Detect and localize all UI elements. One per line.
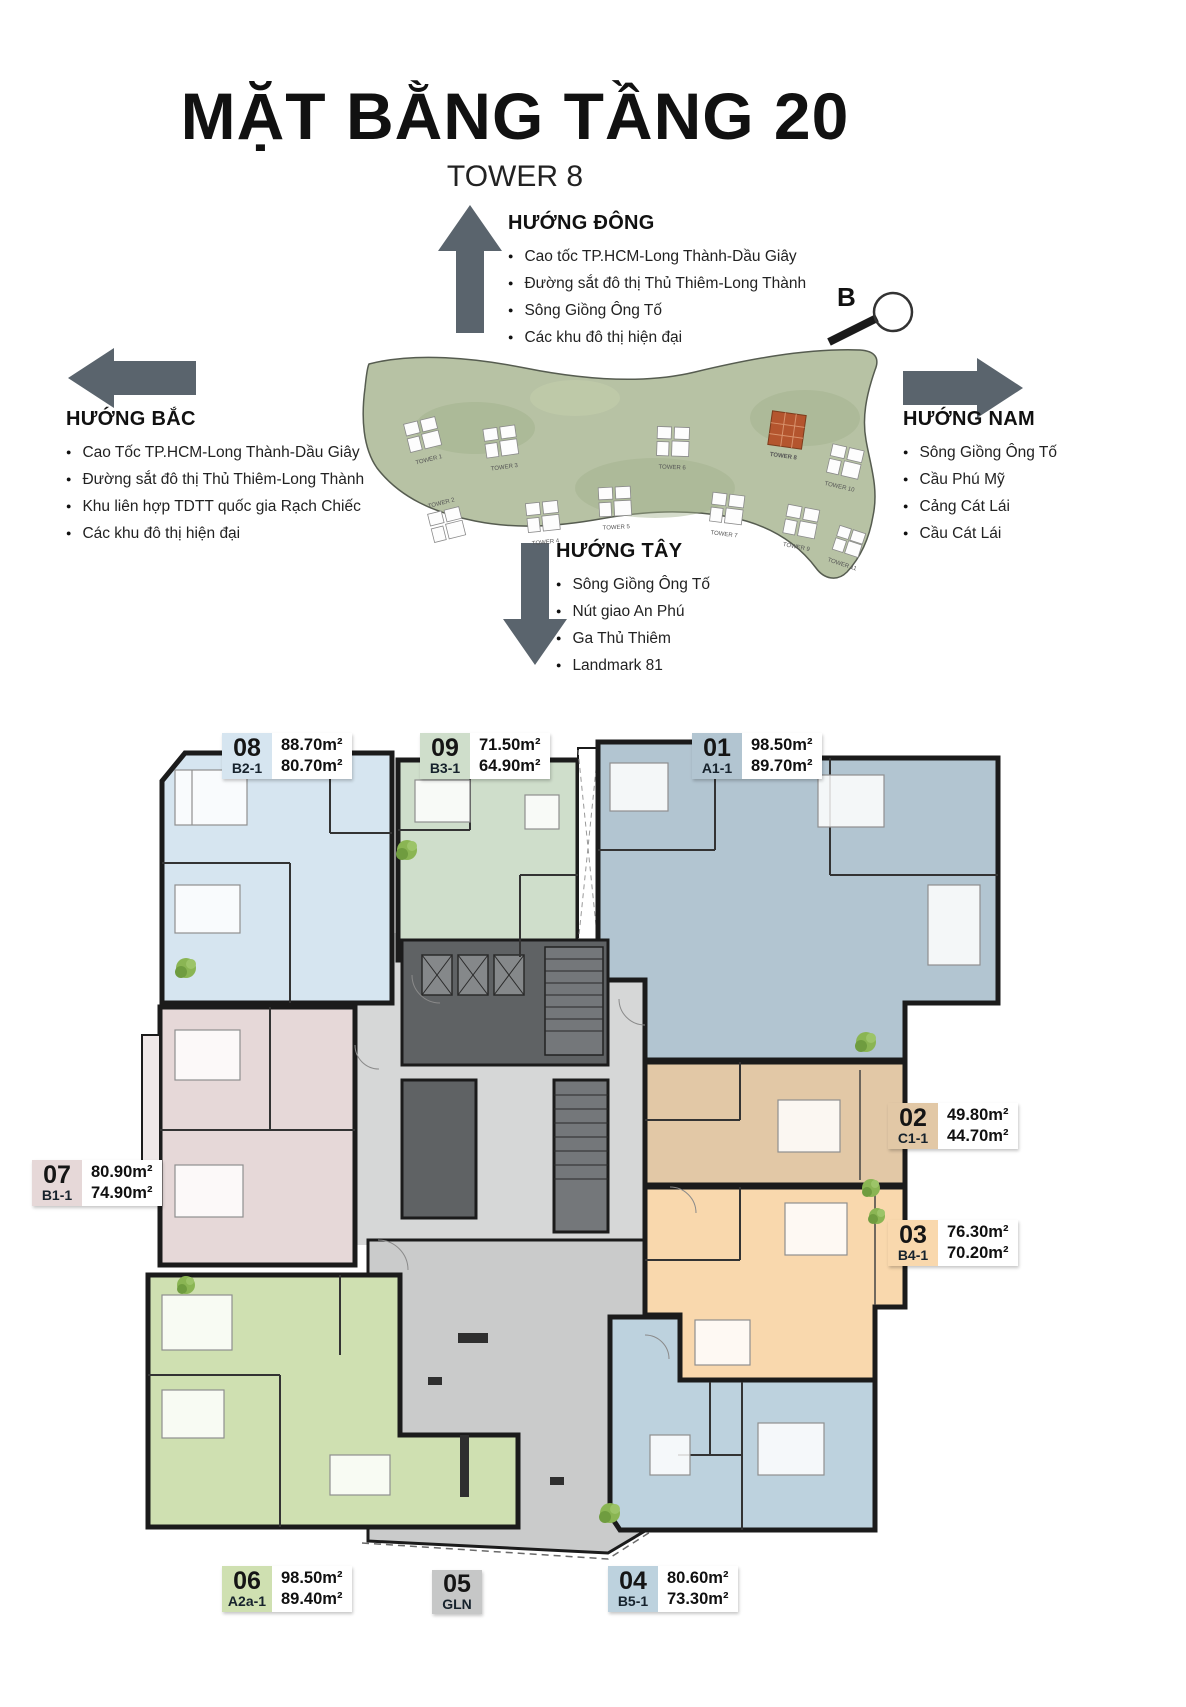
unit-code: A2a-1 (228, 1593, 266, 1609)
unit-area-gross: 80.90m² (91, 1162, 152, 1183)
unit-code: A1-1 (702, 760, 732, 776)
direction-south-title: HƯỚNG NAM (903, 408, 1173, 431)
page-title: MẶT BẰNG TẦNG 20 (0, 78, 1030, 154)
unit-code: B4-1 (898, 1247, 928, 1263)
direction-item: Ga Thủ Thiêm (556, 630, 806, 648)
unit-area-gross: 98.50m² (751, 735, 812, 756)
unit-code: B1-1 (42, 1187, 72, 1203)
unit-area-gross: 98.50m² (281, 1568, 342, 1589)
direction-south-list: Sông Giồng Ông Tố Cầu Phú Mỹ Cảng Cát Lá… (903, 444, 1173, 543)
direction-item: Cảng Cát Lái (903, 498, 1173, 516)
unit-number: 07 (43, 1163, 71, 1187)
direction-item: Đường sắt đô thị Thủ Thiêm-Long Thành (508, 275, 828, 293)
unit-number: 04 (619, 1569, 647, 1593)
unit-area-net: 89.40m² (281, 1589, 342, 1610)
unit-number: 01 (703, 736, 731, 760)
unit-code: B5-1 (618, 1593, 648, 1609)
unit-number: 05 (443, 1572, 471, 1596)
unit-code: GLN (442, 1596, 472, 1612)
direction-east-title: HƯỚNG ĐÔNG (508, 212, 828, 235)
direction-item: Sông Giồng Ông Tố (903, 444, 1173, 462)
unit-number: 08 (233, 736, 261, 760)
unit-chip-04: 04 B5-1 80.60m² 73.30m² (608, 1566, 738, 1612)
direction-east: HƯỚNG ĐÔNG Cao tốc TP.HCM-Long Thành-Dầu… (508, 212, 828, 356)
direction-east-list: Cao tốc TP.HCM-Long Thành-Dầu Giây Đường… (508, 248, 828, 347)
unit-chip-02: 02 C1-1 49.80m² 44.70m² (888, 1103, 1018, 1149)
unit-area-net: 70.20m² (947, 1243, 1008, 1264)
unit-number: 09 (431, 736, 459, 760)
site-map: TOWER 1 TOWER 2 TOWER 3 TOWER 4 (355, 338, 885, 588)
direction-item: Cầu Phú Mỹ (903, 471, 1173, 489)
unit-chip-07: 07 B1-1 80.90m² 74.90m² (32, 1160, 162, 1206)
direction-west-list: Sông Giồng Ông Tố Nút giao An Phú Ga Thủ… (556, 576, 806, 675)
unit-area-net: 44.70m² (947, 1126, 1008, 1147)
tower-footprint: TOWER 5 (598, 486, 632, 532)
unit-chip-08: 08 B2-1 88.70m² 80.70m² (222, 733, 352, 779)
unit-area-net: 80.70m² (281, 756, 342, 777)
page-subtitle: TOWER 8 (0, 160, 1030, 194)
unit-number: 06 (233, 1569, 261, 1593)
unit-chip-03: 03 B4-1 76.30m² 70.20m² (888, 1220, 1018, 1266)
svg-text:TOWER 7: TOWER 7 (710, 530, 738, 539)
unit-area-net: 73.30m² (667, 1589, 728, 1610)
tower-footprint: TOWER 7 (708, 492, 745, 540)
unit-tag: 09 B3-1 (420, 733, 470, 779)
unit-tag: 04 B5-1 (608, 1566, 658, 1612)
unit-tag: 06 A2a-1 (222, 1566, 272, 1612)
unit-chip-05: 05 GLN (432, 1570, 482, 1614)
direction-item: Nút giao An Phú (556, 603, 806, 621)
unit-area-gross: 71.50m² (479, 735, 540, 756)
svg-text:TOWER 5: TOWER 5 (603, 524, 631, 531)
unit-tag: 03 B4-1 (888, 1220, 938, 1266)
unit-area-gross: 76.30m² (947, 1222, 1008, 1243)
unit-tag: 07 B1-1 (32, 1160, 82, 1206)
unit-02-area (645, 1062, 905, 1185)
unit-area-net: 64.90m² (479, 756, 540, 777)
svg-text:TOWER 4: TOWER 4 (532, 538, 560, 547)
direction-south: HƯỚNG NAM Sông Giồng Ông Tố Cầu Phú Mỹ C… (903, 408, 1173, 552)
direction-item: Cầu Cát Lái (903, 525, 1173, 543)
floor-plan (130, 735, 1010, 1565)
arrow-left-north-icon (68, 348, 196, 408)
tower-footprint: TOWER 4 (525, 500, 561, 547)
unit-area-gross: 88.70m² (281, 735, 342, 756)
unit-code: B2-1 (232, 760, 262, 776)
unit-tag: 02 C1-1 (888, 1103, 938, 1149)
unit-area-net: 89.70m² (751, 756, 812, 777)
direction-item: Các khu đô thị hiện đại (66, 525, 396, 543)
svg-text:TOWER 6: TOWER 6 (658, 465, 686, 472)
direction-item: Cao Tốc TP.HCM-Long Thành-Dầu Giây (66, 444, 396, 462)
unit-area-net: 74.90m² (91, 1183, 152, 1204)
direction-item: Landmark 81 (556, 657, 806, 675)
unit-chip-01: 01 A1-1 98.50m² 89.70m² (692, 733, 822, 779)
direction-item: Khu liên hợp TDTT quốc gia Rạch Chiếc (66, 498, 396, 516)
unit-number: 02 (899, 1106, 927, 1130)
direction-north-title: HƯỚNG BẮC (66, 408, 396, 431)
direction-item: Cao tốc TP.HCM-Long Thành-Dầu Giây (508, 248, 828, 266)
unit-area-gross: 80.60m² (667, 1568, 728, 1589)
unit-chip-09: 09 B3-1 71.50m² 64.90m² (420, 733, 550, 779)
unit-03-area (645, 1187, 905, 1380)
direction-item: Đường sắt đô thị Thủ Thiêm-Long Thành (66, 471, 396, 489)
unit-area-gross: 49.80m² (947, 1105, 1008, 1126)
direction-north: HƯỚNG BẮC Cao Tốc TP.HCM-Long Thành-Dầu … (66, 408, 396, 552)
direction-item: Sông Giồng Ông Tố (508, 302, 828, 320)
floor-plan-page: MẶT BẰNG TẦNG 20 TOWER 8 HƯỚNG ĐÔNG Cao … (0, 0, 1186, 1707)
unit-tag: 01 A1-1 (692, 733, 742, 779)
direction-north-list: Cao Tốc TP.HCM-Long Thành-Dầu Giây Đường… (66, 444, 396, 543)
unit-tag: 05 GLN (432, 1570, 482, 1614)
unit-chip-06: 06 A2a-1 98.50m² 89.40m² (222, 1566, 352, 1612)
unit-tag: 08 B2-1 (222, 733, 272, 779)
unit-code: C1-1 (898, 1130, 928, 1146)
unit-number: 03 (899, 1223, 927, 1247)
arrow-up-east-icon (438, 205, 502, 333)
unit-code: B3-1 (430, 760, 460, 776)
compass-letter: B (837, 282, 856, 312)
